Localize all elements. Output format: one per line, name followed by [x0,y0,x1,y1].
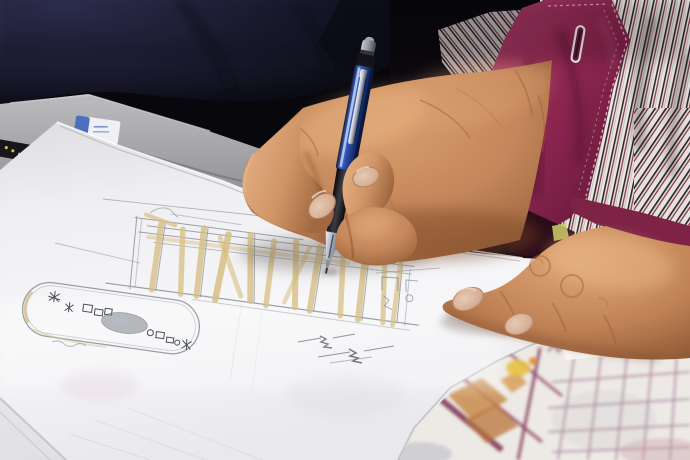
plan-yellow-spot [506,360,530,376]
pen-tip-shadow [321,269,339,276]
vignette [0,0,690,60]
pencil-lead [326,268,327,273]
photo-canvas [0,0,690,460]
photo-svg [0,0,690,460]
